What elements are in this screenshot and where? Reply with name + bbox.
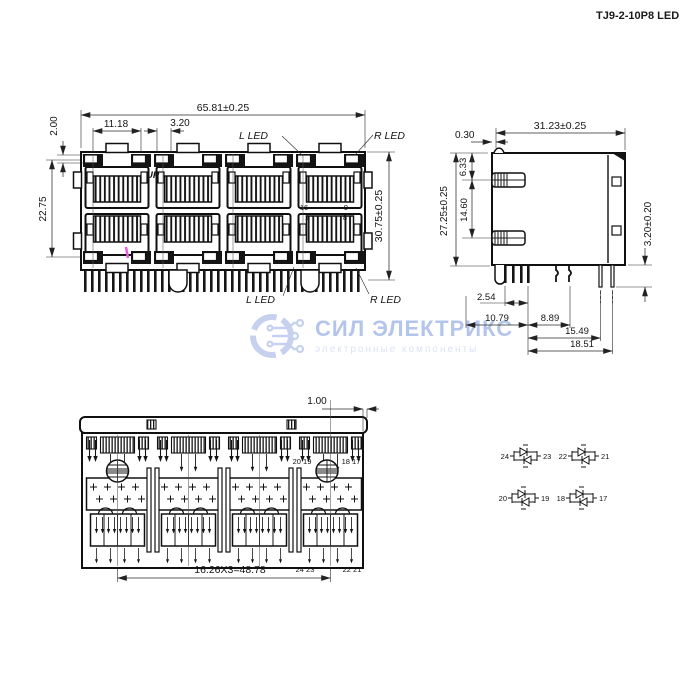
front-view-pin-comb (83, 270, 362, 292)
part-number-title: TJ9-2-10P8 LED (596, 10, 679, 22)
dim-height: 27.25±0.25 (439, 186, 450, 236)
dual-led-symbol (568, 445, 599, 467)
technical-drawing: UP 65.81±0.25 11.18 3.20 2.00 (0, 0, 699, 699)
bottom-view-top-bar (80, 417, 367, 433)
label-pins-22-21: 22 21 (343, 565, 362, 574)
dim-overall-width: 65.81±0.25 (197, 102, 250, 114)
dual-led-symbol (566, 487, 597, 509)
label-l-led-top: L LED (239, 130, 268, 142)
led-pin-label: 24 (501, 452, 509, 461)
dim-pin-row-a: 10.79 (485, 313, 509, 324)
dim-edge-offset: 1.00 (307, 396, 327, 407)
dual-led-symbol (508, 487, 539, 509)
dim-row-spacing: 22.75 (38, 196, 49, 221)
led-pin-label: 18 (557, 494, 565, 503)
dim-latch-top: 6.33 (458, 158, 469, 177)
led-pin-label: 21 (601, 452, 609, 461)
dim-depth: 31.23±0.25 (534, 120, 587, 132)
bottom-view-screw-post-right (316, 460, 338, 482)
label-pins-18-17: 18 17 (342, 457, 361, 466)
led-pin-label: 23 (543, 452, 551, 461)
pin-number-8: 8 (343, 213, 347, 222)
label-pins-20-19: 20 19 (293, 457, 312, 466)
dim-latch-spacing: 14.60 (459, 198, 470, 222)
bottom-view: 20 19 18 17 24 23 22 21 1.00 16.26X3=48.… (80, 396, 379, 582)
label-pins-24-23: 24 23 (296, 565, 315, 574)
led-pin-label: 20 (499, 494, 507, 503)
dim-pin-pitch: 2.54 (477, 292, 496, 303)
up-marking: UP (146, 170, 160, 181)
led-circuit-18-17: 18 17 (557, 487, 608, 509)
dim-led-spacing: 11.18 (104, 119, 129, 130)
label-l-led-bottom: L LED (246, 294, 275, 306)
dim-pin-row-c: 15.49 (565, 326, 589, 337)
dim-pin-length: 3.20±0.20 (643, 201, 654, 246)
side-view-top-bump (494, 148, 504, 153)
dim-overall-height: 30.75±0.25 (373, 190, 385, 243)
side-view: 31.23±0.25 0.30 27.25±0.25 6.33 14.60 3.… (439, 120, 654, 355)
dim-front-lip: 0.30 (455, 130, 475, 141)
dual-led-symbol (510, 445, 541, 467)
side-view-pins (495, 265, 614, 303)
led-circuit-22-21: 22 21 (559, 445, 610, 467)
dim-port-pitch: 16.26X3=48.78 (194, 564, 266, 576)
pin-number-9: 9 (344, 203, 348, 212)
front-view: UP 65.81±0.25 11.18 3.20 2.00 (38, 102, 405, 306)
drawing-sheet: СИЛ ЭЛЕКТРИКС электронные компоненты (0, 0, 699, 699)
dim-led-height: 2.00 (49, 116, 60, 136)
pin-number-1: 1 (305, 213, 309, 222)
led-pin-label: 22 (559, 452, 567, 461)
dim-led-width: 3.20 (170, 118, 190, 129)
dim-pin-row-d: 18.51 (570, 339, 594, 350)
led-pin-label: 19 (541, 494, 549, 503)
led-circuit-schematics: 24 23 22 21 20 19 18 17 (499, 445, 610, 509)
label-r-led-top: R LED (374, 130, 405, 142)
led-circuit-20-19: 20 19 (499, 487, 550, 509)
pin-number-16: 16 (300, 203, 308, 212)
label-r-led-bottom: R LED (370, 294, 401, 306)
dim-pin-row-b: 8.89 (541, 313, 560, 324)
side-view-body (492, 153, 625, 265)
led-pin-label: 17 (599, 494, 607, 503)
led-circuit-24-23: 24 23 (501, 445, 552, 467)
